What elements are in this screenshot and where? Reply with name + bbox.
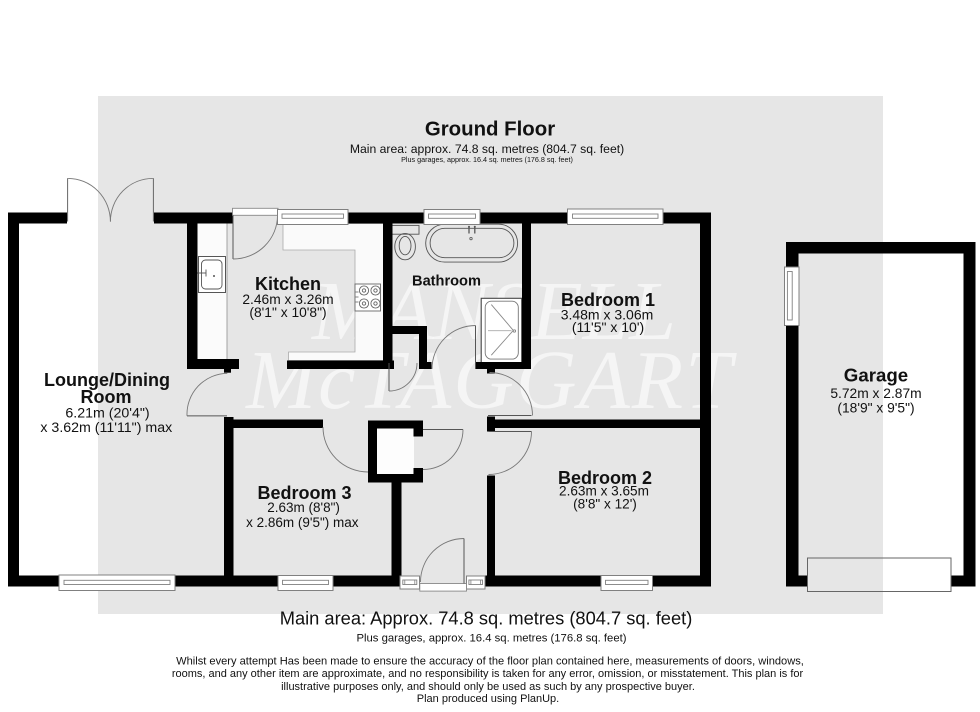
svg-text:Plus garages, approx. 16.4 sq.: Plus garages, approx. 16.4 sq. metres (1…	[356, 633, 626, 645]
svg-text:5.72m x 2.87m: 5.72m x 2.87m	[830, 386, 921, 401]
svg-text:x 3.62m (11'11") max: x 3.62m (11'11") max	[40, 420, 172, 436]
svg-text:illustrative purposes only, an: illustrative purposes only, and should o…	[281, 681, 695, 693]
svg-text:(8'1" x 10'8"): (8'1" x 10'8")	[249, 305, 326, 320]
svg-text:Bathroom: Bathroom	[412, 274, 481, 290]
svg-text:Whilst every attempt Has been: Whilst every attempt Has been made to en…	[176, 655, 804, 667]
svg-text:x 2.86m (9'5") max: x 2.86m (9'5") max	[246, 515, 359, 530]
svg-text:rooms, and any other item are: rooms, and any other item are approximat…	[172, 668, 804, 680]
svg-text:Garage: Garage	[844, 365, 908, 386]
svg-text:Ground Floor: Ground Floor	[425, 119, 555, 141]
svg-text:Plan produced using PlanUp.: Plan produced using PlanUp.	[417, 693, 559, 705]
svg-text:(18'9" x 9'5"): (18'9" x 9'5")	[837, 401, 914, 416]
svg-text:Room: Room	[81, 387, 132, 407]
svg-text:(11'5" x 10'): (11'5" x 10')	[572, 319, 644, 335]
svg-text:(8'8" x 12'): (8'8" x 12')	[573, 497, 637, 512]
svg-text:2.63m (8'8"): 2.63m (8'8")	[267, 500, 340, 515]
svg-text:Main area: approx. 74.8 sq. me: Main area: approx. 74.8 sq. metres (804.…	[350, 142, 624, 156]
svg-text:Kitchen: Kitchen	[255, 274, 321, 294]
svg-text:Main area: Approx. 74.8 sq. me: Main area: Approx. 74.8 sq. metres (804.…	[280, 608, 693, 629]
svg-text:Plus garages, approx. 16.4 sq.: Plus garages, approx. 16.4 sq. metres (1…	[401, 155, 573, 164]
